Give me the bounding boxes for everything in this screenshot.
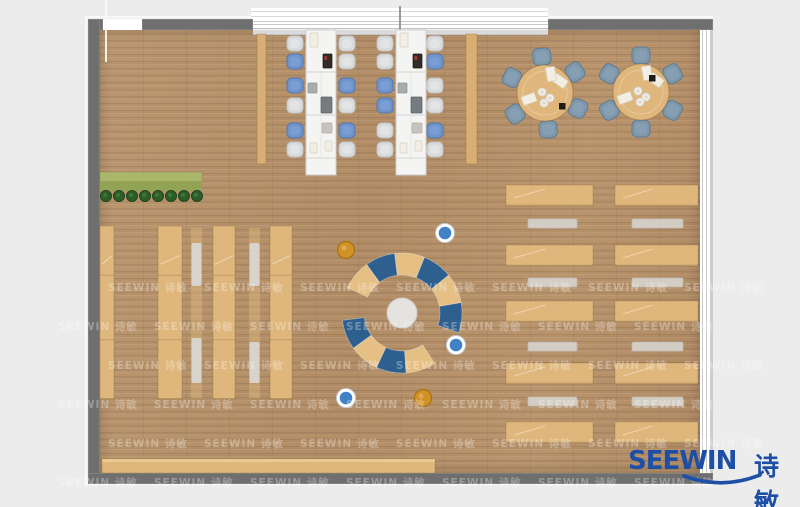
desk-chair bbox=[287, 78, 303, 93]
table-item-paper bbox=[400, 143, 407, 153]
planter-box bbox=[100, 172, 202, 182]
bench bbox=[528, 397, 577, 406]
desk-chair bbox=[339, 78, 355, 93]
bookshelf-row bbox=[158, 226, 182, 400]
desk-chair bbox=[427, 36, 443, 51]
table-item-laptop-dark bbox=[321, 97, 332, 113]
desk-chair bbox=[427, 123, 443, 138]
bench bbox=[632, 397, 683, 406]
study-desk bbox=[615, 422, 698, 443]
desk-chair bbox=[427, 142, 443, 157]
bench bbox=[528, 278, 577, 287]
round-table bbox=[613, 64, 669, 120]
bench bbox=[632, 342, 683, 351]
round-table bbox=[517, 65, 573, 121]
table-item-paper bbox=[310, 33, 318, 47]
desk-chair bbox=[339, 54, 355, 69]
table-item-tray bbox=[322, 123, 332, 133]
desk-chair bbox=[377, 142, 393, 157]
bench bbox=[632, 278, 683, 287]
long-table bbox=[396, 30, 426, 175]
side-panel bbox=[466, 34, 477, 164]
planter-box bbox=[100, 182, 202, 192]
desk-chair bbox=[339, 142, 355, 157]
desk-chair bbox=[427, 98, 443, 113]
desk-chair bbox=[377, 78, 393, 93]
bookshelf-row bbox=[100, 226, 114, 400]
plant-icon bbox=[114, 191, 125, 202]
plant-icon bbox=[127, 191, 138, 202]
desk-chair bbox=[427, 54, 443, 69]
plant-icon bbox=[101, 191, 112, 202]
reading-strip bbox=[249, 228, 260, 398]
study-desk bbox=[615, 185, 698, 206]
table-item-laptop bbox=[398, 83, 407, 93]
bench bbox=[528, 342, 577, 351]
study-desk bbox=[615, 301, 698, 322]
desk-chair bbox=[287, 36, 303, 51]
study-desk bbox=[506, 301, 593, 322]
round-table-chair bbox=[532, 47, 551, 65]
furniture-layer bbox=[0, 0, 800, 507]
pouf-blue bbox=[436, 224, 455, 243]
desk-chair bbox=[287, 142, 303, 157]
desk-chair bbox=[377, 123, 393, 138]
table-item-paper bbox=[415, 141, 422, 151]
table-item-paper bbox=[545, 66, 556, 81]
bookshelf-row bbox=[270, 226, 292, 400]
side-panel bbox=[257, 34, 266, 164]
desk-chair bbox=[377, 98, 393, 113]
long-table bbox=[306, 30, 336, 175]
floor-plan-canvas: SEEWIN 诗敏SEEWIN 诗敏SEEWIN 诗敏SEEWIN 诗敏SEEW… bbox=[0, 0, 800, 507]
table-item-paper bbox=[325, 141, 332, 151]
logo-text-cn: 诗敏 bbox=[754, 447, 798, 507]
table-item-dark bbox=[323, 54, 332, 68]
table-item-tray bbox=[412, 123, 422, 133]
logo-text-en: SEEWIN bbox=[628, 446, 736, 476]
desk-chair bbox=[287, 123, 303, 138]
bottom-bench bbox=[102, 459, 435, 473]
lounge-center-table bbox=[387, 298, 417, 328]
round-table-chair bbox=[632, 47, 650, 64]
plant-icon bbox=[192, 191, 203, 202]
plant-icon bbox=[153, 191, 164, 202]
plant-icon bbox=[166, 191, 177, 202]
desk-chair bbox=[339, 36, 355, 51]
pouf-blue bbox=[337, 389, 356, 408]
bookshelf-row bbox=[213, 226, 235, 400]
round-table-chair bbox=[538, 120, 557, 138]
table-item-paper bbox=[400, 33, 408, 47]
bench bbox=[632, 219, 683, 228]
study-desk bbox=[506, 185, 593, 206]
pouf-orange bbox=[415, 390, 432, 407]
study-desk bbox=[506, 245, 593, 266]
reading-strip bbox=[191, 228, 202, 398]
desk-chair bbox=[339, 123, 355, 138]
round-table-chair bbox=[632, 120, 650, 137]
pouf-blue bbox=[447, 336, 466, 355]
study-desk bbox=[506, 363, 593, 384]
desk-chair bbox=[339, 98, 355, 113]
table-item-laptop-dark bbox=[411, 97, 422, 113]
plant-icon bbox=[140, 191, 151, 202]
logo-swoosh-icon bbox=[680, 474, 764, 488]
table-item-laptop bbox=[308, 83, 317, 93]
desk-chair bbox=[427, 78, 443, 93]
lounge-arc-lower bbox=[342, 318, 434, 373]
desk-chair bbox=[377, 36, 393, 51]
pouf-orange bbox=[338, 242, 355, 259]
table-item-dark bbox=[413, 54, 422, 68]
seewin-logo: SEEWIN 诗敏 bbox=[628, 446, 798, 492]
study-desk bbox=[615, 245, 698, 266]
study-desk bbox=[506, 422, 593, 443]
table-item-paper bbox=[310, 143, 317, 153]
desk-chair bbox=[377, 54, 393, 69]
table-item-dark bbox=[559, 103, 566, 110]
study-desk bbox=[615, 363, 698, 384]
desk-chair bbox=[287, 98, 303, 113]
desk-chair bbox=[287, 54, 303, 69]
table-item-dark bbox=[649, 75, 656, 82]
bench bbox=[528, 219, 577, 228]
plant-icon bbox=[179, 191, 190, 202]
